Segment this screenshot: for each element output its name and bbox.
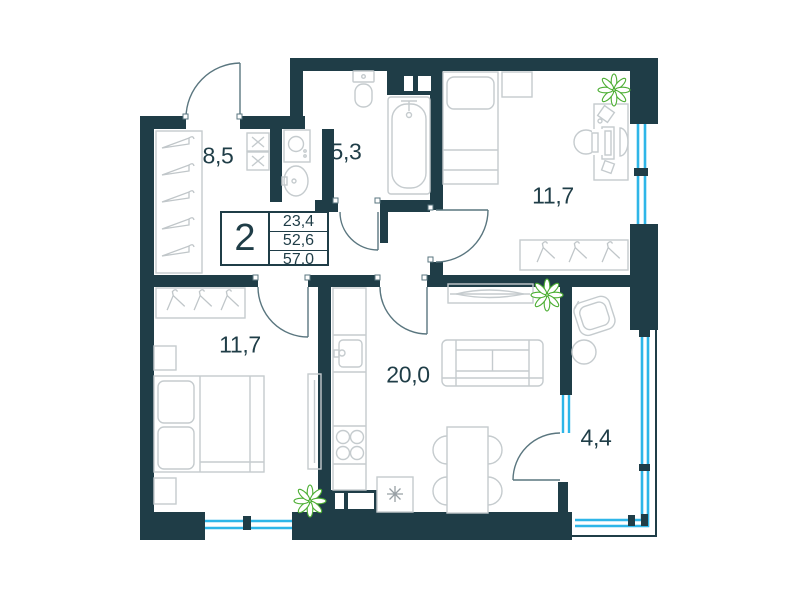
- living-room-door: [380, 287, 427, 334]
- bedroom-top-door: [436, 210, 488, 262]
- bed-single: [443, 72, 498, 184]
- summary-area-no-balcony: 52,6: [270, 232, 327, 251]
- area-label-bedroom-top: 11,7: [532, 183, 574, 210]
- dining-chair: [488, 477, 502, 505]
- dining-table: [447, 427, 488, 513]
- wardrobe-top-bedroom: [520, 240, 628, 270]
- bedside-cabinet: [502, 72, 532, 97]
- dining-chair: [488, 436, 502, 464]
- area-label-hallway: 8,5: [202, 143, 233, 170]
- hallway-wardrobe: [156, 131, 202, 273]
- area-label-bedroom-bottom: 11,7: [219, 332, 261, 359]
- stove: [337, 431, 364, 460]
- entry-door: [186, 63, 240, 118]
- summary-total-area: 57,0: [270, 251, 327, 269]
- apartment-summary-box: 2 23,4 52,6 57,0: [220, 211, 329, 266]
- coffee-table: [572, 340, 596, 364]
- area-label-bathroom: 5,3: [330, 139, 361, 166]
- toilet: [353, 71, 374, 107]
- kitchen-counter: [333, 288, 366, 490]
- nightstand: [154, 346, 176, 370]
- washing-machine: [284, 130, 310, 162]
- kitchen-sink: [334, 340, 362, 367]
- rooms-count: 2: [222, 213, 270, 264]
- fridge: [377, 477, 413, 512]
- armchair: [571, 292, 617, 338]
- bedroom-bottom-door: [258, 287, 308, 337]
- area-label-balcony: 4,4: [580, 425, 611, 452]
- sofa: [442, 340, 543, 386]
- wardrobe-bottom-bedroom: [156, 288, 245, 318]
- dining-chair: [433, 436, 447, 464]
- plant-icon: [598, 74, 630, 106]
- bathtub: [388, 97, 430, 194]
- bed-double: [154, 376, 264, 472]
- balcony-door: [513, 433, 560, 480]
- bathroom-sink: [282, 166, 308, 196]
- desk-chair: [574, 129, 604, 155]
- floor-plan: 8,5 5,3 11,7 11,7 20,0 4,4 2 23,4 52,6 5…: [0, 0, 800, 600]
- summary-living-area: 23,4: [270, 213, 327, 232]
- walls: [140, 58, 658, 540]
- dining-chair: [433, 477, 447, 505]
- floor-plan-drawing: [0, 0, 800, 600]
- bathroom-door: [340, 212, 378, 250]
- plant-icon: [531, 279, 563, 311]
- electrical-panel-icon: [247, 133, 269, 170]
- doors: [183, 63, 560, 480]
- nightstand: [154, 478, 176, 504]
- plant-icon: [294, 485, 326, 517]
- area-label-kitchen-living: 20,0: [386, 362, 430, 389]
